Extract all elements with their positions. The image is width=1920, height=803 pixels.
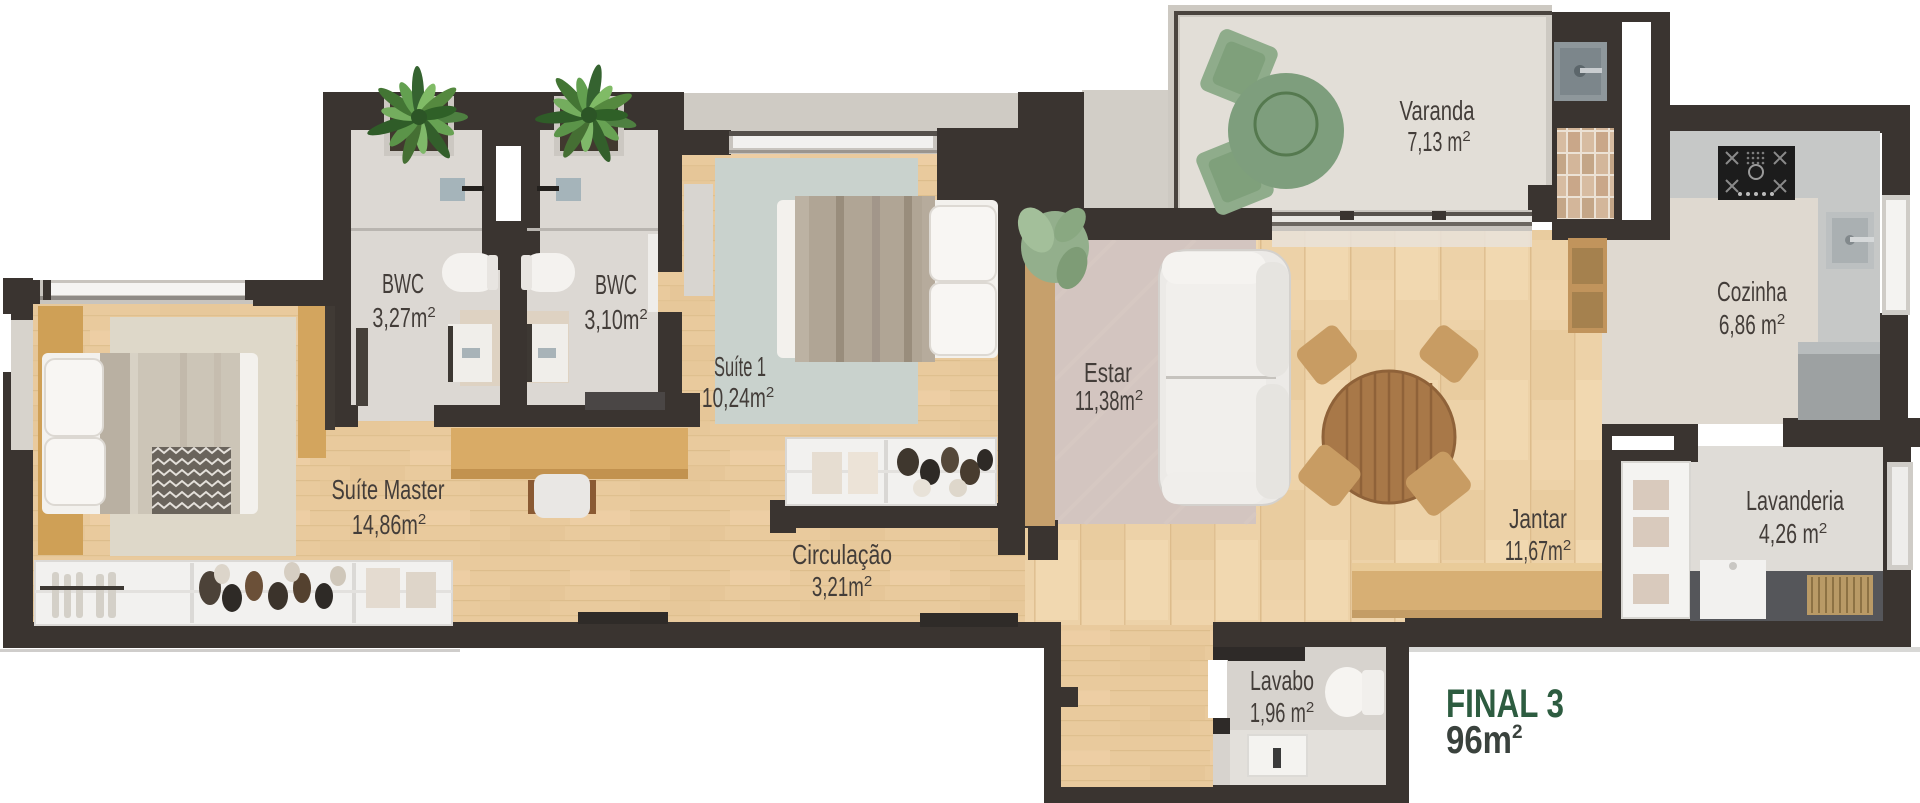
svg-text:3,21m2: 3,21m2 <box>812 571 872 602</box>
svg-text:Jantar: Jantar <box>1509 503 1567 534</box>
svg-text:96m2: 96m2 <box>1446 719 1523 762</box>
svg-text:BWC: BWC <box>382 268 424 299</box>
svg-text:4,26 m2: 4,26 m2 <box>1759 518 1827 549</box>
svg-text:14,86m2: 14,86m2 <box>352 509 426 540</box>
svg-text:Cozinha: Cozinha <box>1717 276 1787 307</box>
svg-text:11,38m2: 11,38m2 <box>1075 385 1143 416</box>
svg-text:6,86 m2: 6,86 m2 <box>1719 309 1785 340</box>
svg-text:10,24m2: 10,24m2 <box>702 382 774 413</box>
svg-text:Circulação: Circulação <box>792 539 892 570</box>
svg-text:1,96 m2: 1,96 m2 <box>1250 697 1314 728</box>
svg-text:11,67m2: 11,67m2 <box>1505 535 1571 566</box>
svg-text:Varanda: Varanda <box>1400 95 1475 126</box>
svg-text:3,10m2: 3,10m2 <box>584 304 647 335</box>
svg-text:Lavanderia: Lavanderia <box>1746 485 1844 516</box>
svg-text:Estar: Estar <box>1084 357 1132 388</box>
svg-text:Suíte 1: Suíte 1 <box>714 351 766 382</box>
svg-text:3,27m2: 3,27m2 <box>372 302 435 333</box>
svg-text:Suíte Master: Suíte Master <box>332 474 445 505</box>
svg-text:7,13 m2: 7,13 m2 <box>1407 126 1470 157</box>
svg-text:BWC: BWC <box>595 269 637 300</box>
svg-text:Lavabo: Lavabo <box>1250 665 1314 696</box>
